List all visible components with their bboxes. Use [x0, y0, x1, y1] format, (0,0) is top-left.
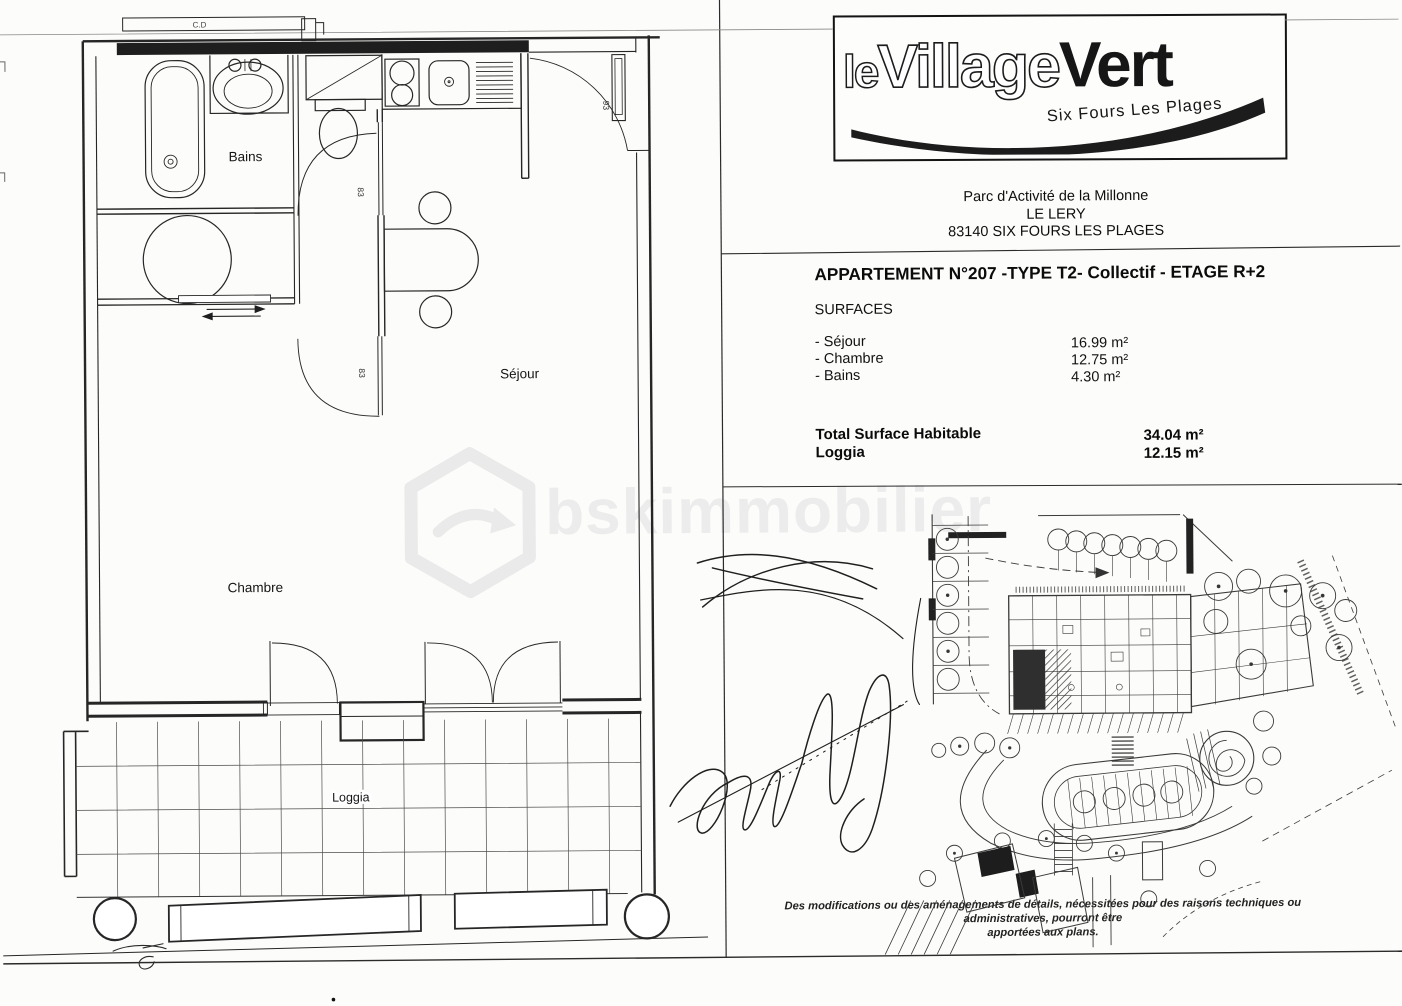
building-main: [1009, 584, 1314, 714]
drying-rack: [476, 62, 513, 102]
surface-row-value: 12.75 m²: [1071, 352, 1128, 369]
site-plan: [882, 511, 1398, 955]
site-road: [960, 748, 1253, 861]
trees-right: [1203, 568, 1357, 679]
parking-left: [932, 525, 989, 693]
brand-logo: leVillageVert Six Fours Les Plages: [835, 16, 1282, 156]
room-label-chambre: Chambre: [228, 580, 284, 595]
scanned-floorplan-document: bskimmobilier leVillageVert Six Fours Le…: [0, 0, 1402, 1006]
stove: [385, 59, 419, 106]
storage-cabinet: [306, 55, 382, 111]
footnote-line2: apportées aux plans.: [765, 924, 1321, 942]
address-block: Parc d'Activité de la Millonne LE LERY 8…: [828, 187, 1284, 243]
total-row-value: 12.15 m²: [1144, 444, 1204, 462]
interior-partition: 83 83: [296, 109, 385, 417]
total-row-label: Total Surface Habitable: [815, 425, 981, 444]
surface-row-value: 4.30 m²: [1071, 369, 1128, 386]
watermark-text: bskimmobilier: [545, 472, 992, 549]
surfaces-heading: SURFACES: [815, 302, 893, 319]
top-ledge: C.D: [123, 17, 324, 42]
toilet: [319, 108, 357, 158]
room-label-loggia: Loggia: [332, 790, 370, 804]
apartment-title: APPARTEMENT N°207 -TYPE T2- Collectif - …: [814, 260, 1394, 285]
watermark-logo-icon: [402, 445, 553, 606]
sliding-door: [98, 295, 295, 321]
surfaces-values: 16.99 m² 12.75 m² 4.30 m²: [1071, 335, 1129, 386]
loggia-tiles: [76, 718, 642, 897]
bath-partition: [293, 55, 300, 304]
balcony-ticks: [1007, 713, 1183, 734]
outer-walls: [83, 35, 666, 898]
trees-cluster: [932, 733, 1020, 759]
surface-row-label: - Séjour: [815, 334, 884, 351]
logo-prefix: le: [843, 45, 879, 97]
spiral-stair: [1186, 711, 1281, 795]
loggia: Loggia: [2, 718, 709, 956]
site-road: [983, 758, 1233, 844]
room-label-sejour: Séjour: [500, 366, 540, 381]
address-line3: 83140 SIX FOURS LES PLAGES: [828, 222, 1284, 243]
south-wall: [88, 638, 642, 742]
entry-door: 93: [530, 54, 650, 151]
signature: [668, 553, 922, 853]
highlighted-unit: [1013, 650, 1045, 710]
dining-table: [384, 192, 479, 329]
parking-oval: [1038, 750, 1217, 845]
chair: [419, 192, 451, 224]
surfaces-labels: - Séjour - Chambre - Bains: [815, 334, 884, 385]
svg-text:leVillageVert: leVillageVert: [843, 28, 1174, 101]
totals-labels: Total Surface Habitable Loggia: [815, 425, 981, 461]
door-label-83-lower: 83: [357, 368, 367, 378]
surface-row-label: - Bains: [815, 368, 884, 385]
footnote-line1: Des modifications ou des aménagements de…: [765, 896, 1321, 928]
kitchen-wall: [521, 53, 529, 178]
totals-values: 34.04 m² 12.15 m²: [1143, 426, 1203, 461]
ledge-label: C.D: [193, 20, 207, 29]
washing-machine: [143, 215, 232, 304]
trees-left: [936, 528, 959, 690]
surface-row-label: - Chambre: [815, 351, 884, 368]
room-label-bains: Bains: [229, 149, 263, 164]
logo-middle: Village: [877, 31, 1059, 100]
washbasin: [210, 55, 288, 115]
handwritten-marks: [113, 944, 166, 969]
footnote: Des modifications ou des aménagements de…: [765, 896, 1321, 942]
kitchen-sink: [429, 61, 469, 105]
loggia-post: [94, 898, 136, 940]
kitchen-counter: [382, 53, 521, 109]
brand-logo-box: leVillageVert Six Fours Les Plages: [833, 13, 1288, 161]
total-row-value: 34.04 m²: [1143, 426, 1203, 444]
bains-south-wall: [97, 208, 294, 214]
trees-top: [1048, 528, 1177, 582]
total-row-label: Loggia: [816, 443, 982, 462]
railing: [455, 890, 607, 929]
chair: [420, 296, 452, 328]
loggia-post: [625, 894, 669, 938]
door-label-93: 93: [601, 101, 611, 111]
logo-suffix: Vert: [1059, 28, 1174, 100]
bathtub: [145, 60, 205, 197]
railing: [169, 895, 421, 942]
door-label-83-upper: 83: [356, 187, 366, 197]
surface-row-value: 16.99 m²: [1071, 335, 1128, 352]
